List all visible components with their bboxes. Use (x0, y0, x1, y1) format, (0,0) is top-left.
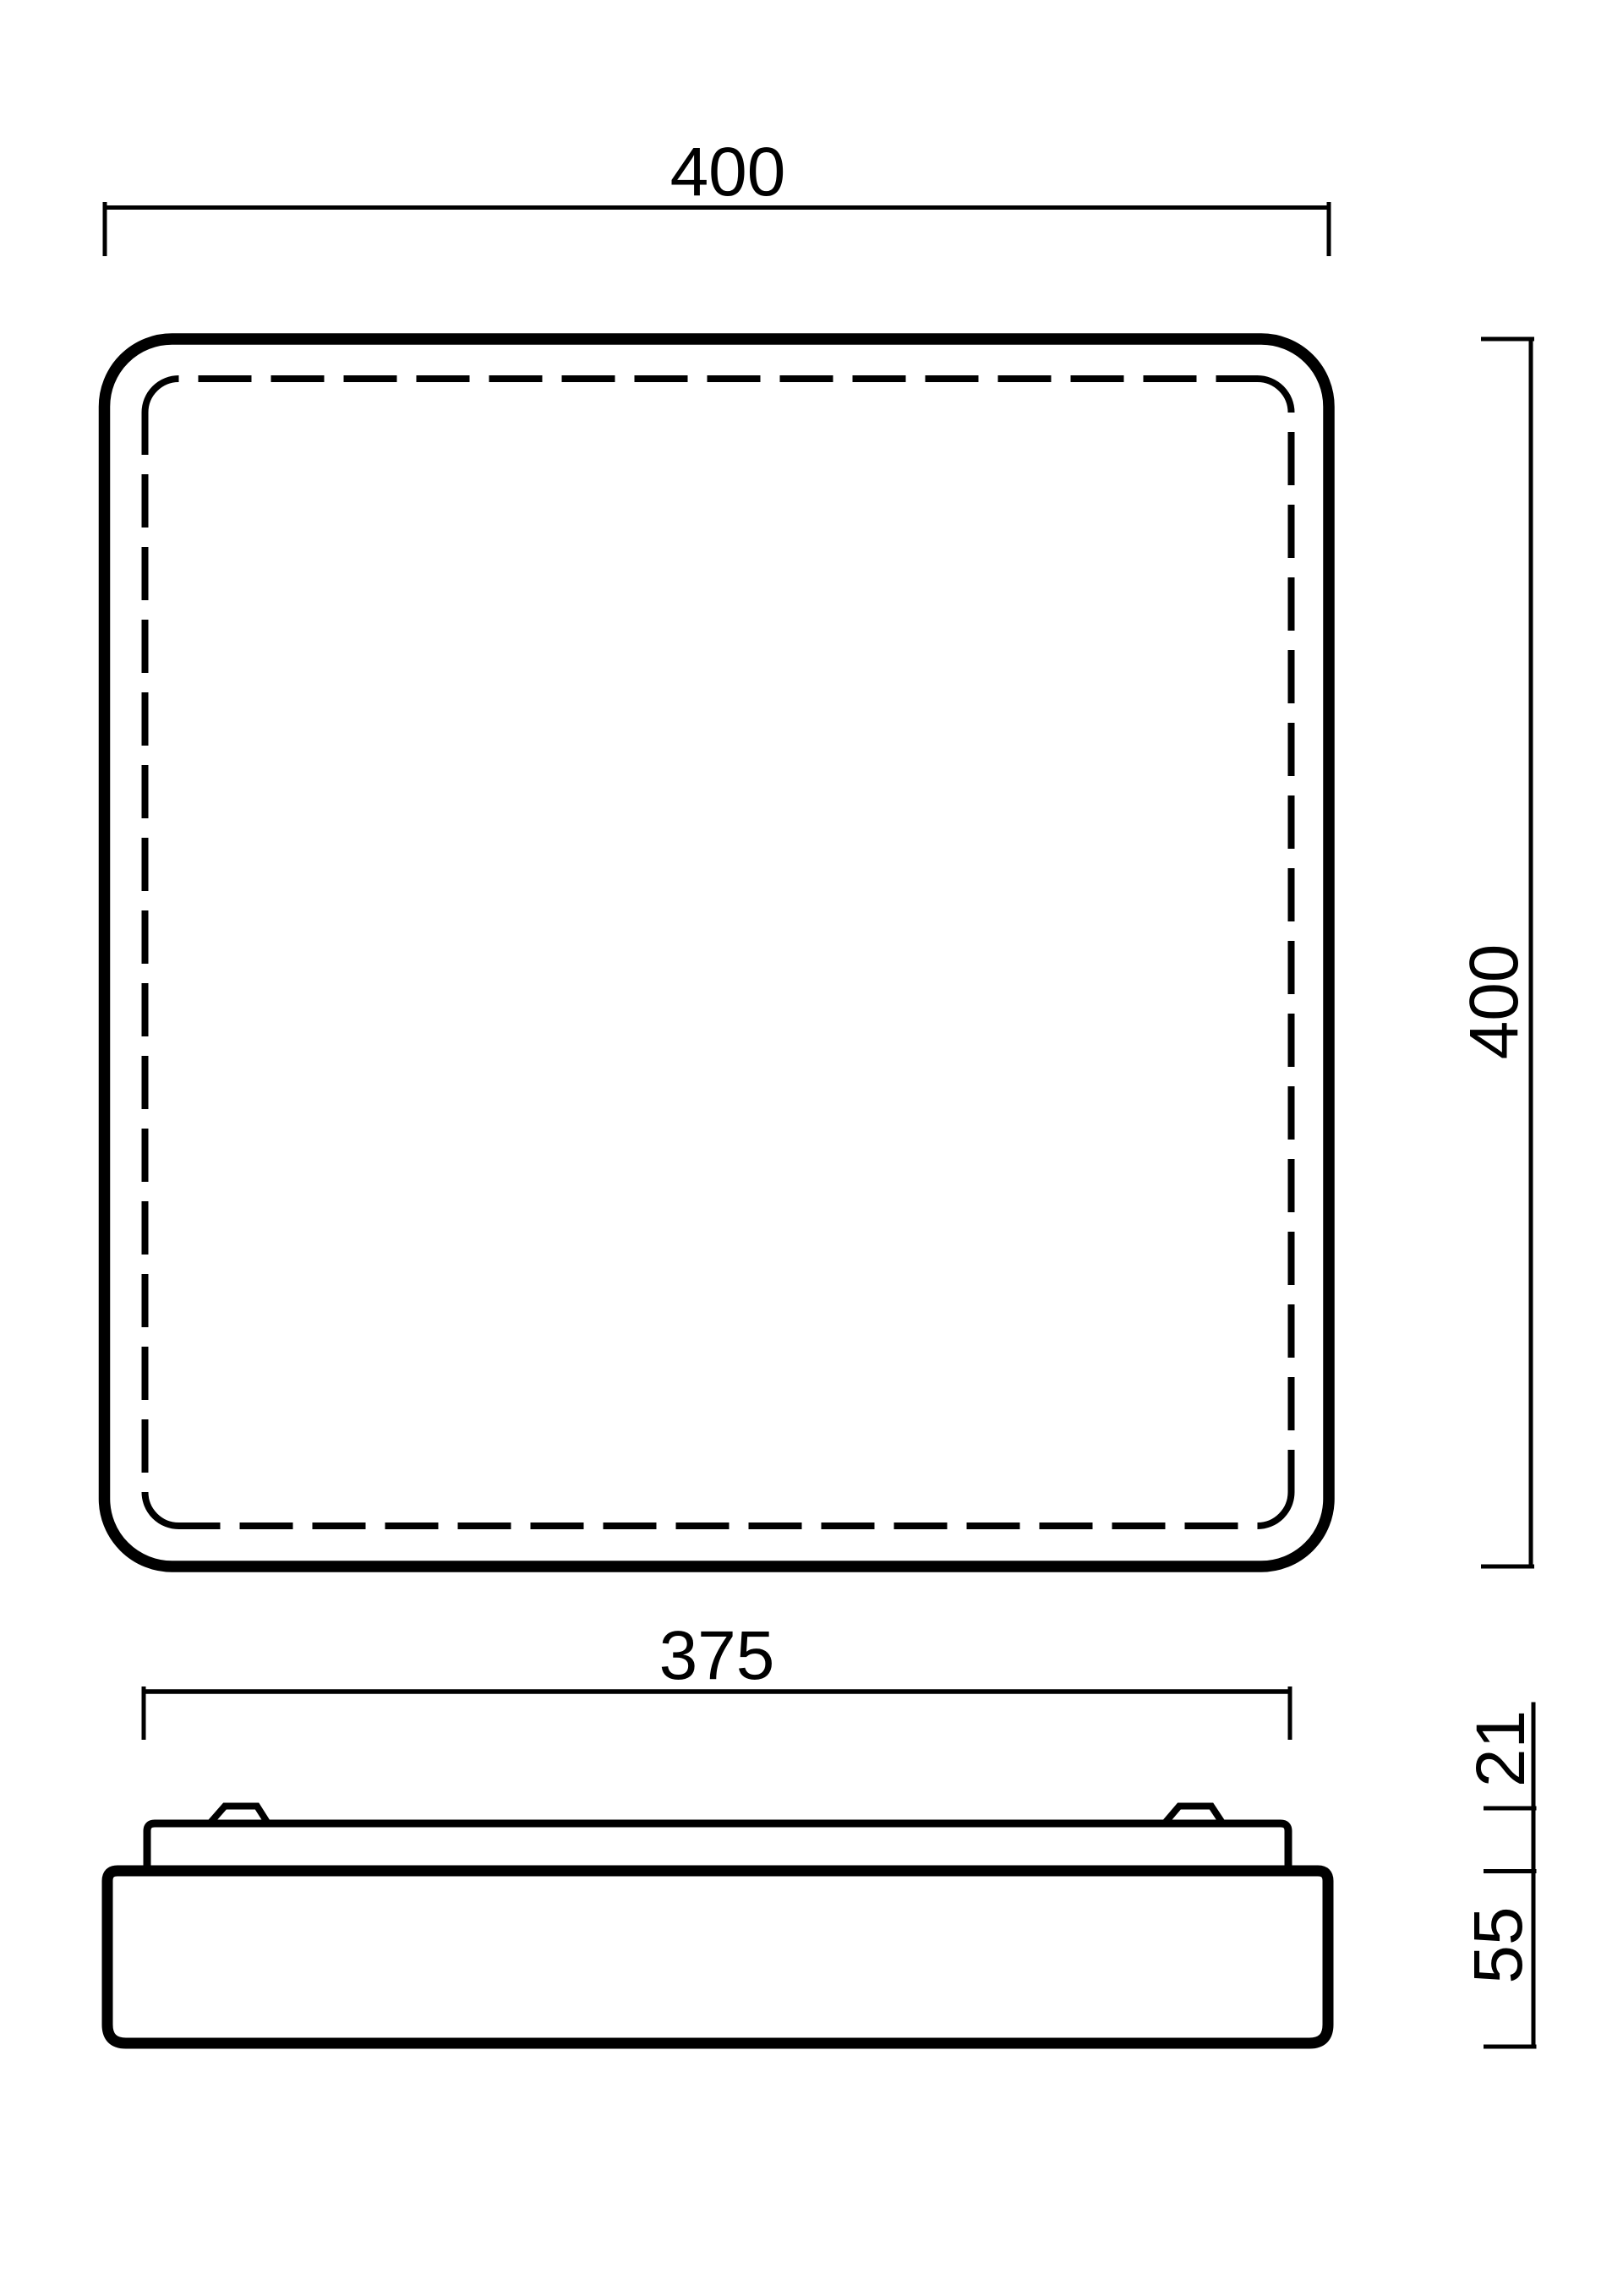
svg-text:400: 400 (1456, 944, 1533, 1060)
svg-text:55: 55 (1460, 1906, 1537, 1983)
svg-text:400: 400 (670, 134, 786, 210)
svg-text:21: 21 (1462, 1710, 1539, 1787)
svg-text:375: 375 (659, 1617, 775, 1694)
